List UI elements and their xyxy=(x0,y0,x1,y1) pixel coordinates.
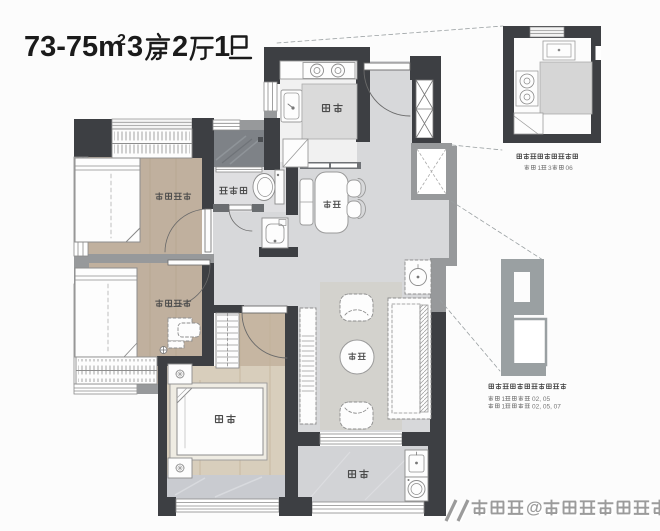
svg-text:06: 06 xyxy=(566,165,574,172)
svg-text:3: 3 xyxy=(548,165,552,172)
svg-text:@: @ xyxy=(526,498,543,517)
svg-text:2: 2 xyxy=(172,31,188,63)
svg-text:2: 2 xyxy=(117,32,126,49)
svg-text:02, 05, 07: 02, 05, 07 xyxy=(532,404,561,411)
svg-text:1: 1 xyxy=(502,404,506,411)
svg-text:73-75m: 73-75m xyxy=(24,31,124,63)
svg-text:02, 05: 02, 05 xyxy=(532,396,550,403)
svg-text:1: 1 xyxy=(538,165,542,172)
svg-text:1: 1 xyxy=(502,396,506,403)
svg-text:3: 3 xyxy=(127,31,143,63)
svg-text:1: 1 xyxy=(214,31,230,63)
